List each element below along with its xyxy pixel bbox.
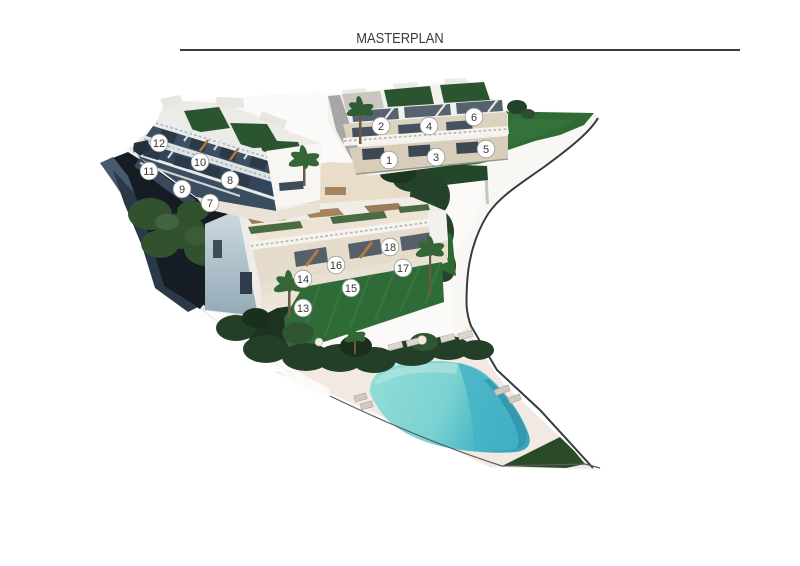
svg-text:9: 9: [179, 184, 185, 196]
svg-text:14: 14: [297, 274, 309, 286]
svg-text:2: 2: [378, 121, 384, 133]
svg-text:13: 13: [297, 303, 309, 315]
svg-text:16: 16: [330, 260, 342, 272]
svg-text:5: 5: [483, 144, 489, 156]
svg-text:15: 15: [345, 283, 357, 295]
svg-text:8: 8: [227, 175, 233, 187]
svg-text:6: 6: [471, 112, 477, 124]
svg-text:12: 12: [153, 138, 165, 150]
svg-text:11: 11: [143, 166, 154, 178]
svg-text:7: 7: [207, 198, 213, 210]
svg-text:1: 1: [386, 155, 392, 167]
svg-text:10: 10: [194, 157, 206, 169]
svg-text:18: 18: [384, 242, 396, 254]
svg-text:3: 3: [433, 152, 439, 164]
svg-text:17: 17: [397, 263, 409, 275]
svg-text:4: 4: [426, 121, 432, 133]
